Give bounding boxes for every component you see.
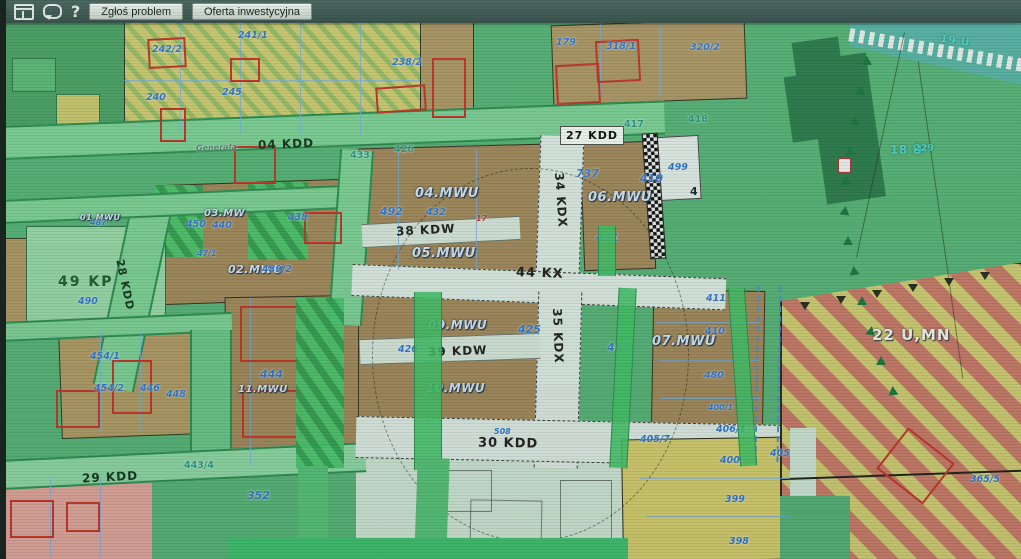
parcel-number: 238/2 [392,57,422,68]
parcel-number: 241/1 [238,30,268,41]
parcel-number: 352 [247,489,270,502]
parcel-number: 418 [688,114,708,125]
parcel-number: 229 [914,143,934,154]
emblem-marker [838,158,851,173]
boundary-tick [800,302,810,310]
cadastral-line [476,150,477,270]
tree-marker [843,236,853,245]
tree-marker [862,56,872,65]
cadastral-line [124,80,420,81]
parcel-number: 399 [725,494,745,505]
parcel-number: 405/7 [640,434,670,445]
parcel-number: 240 [146,92,166,103]
building-outline [432,58,466,118]
boundary-tick [908,284,918,292]
zone-label-49-kp: 49 KP [58,274,113,290]
boundary-tick [980,272,990,280]
building-footprint [560,480,612,542]
parcel-number: 417 [624,119,644,130]
parcel-number: 487 [90,218,107,227]
parcel-number: 508 [494,427,511,436]
parcel-number: 318/1 [606,41,636,52]
tree-marker [888,386,899,396]
cadastral-line [646,516,790,517]
tree-marker [844,145,855,156]
greenery-strip [414,292,442,470]
speech-bubble-icon[interactable] [43,4,62,19]
road-label-30-kdd: 30 KDD [478,435,539,451]
parcel-number: 405 [770,448,790,459]
road-label-44-kx: 44 KX [516,265,564,282]
zone-label-05-mwu: 05.MWU [412,246,476,261]
parcel-number: 17 [476,214,487,223]
parcel-number: 432 [426,207,446,218]
street-name-label: Generała [196,142,237,152]
green-patch-south-hatch [780,496,850,559]
zone-label-04-mwu: 04.MWU [415,186,479,201]
parcel-number: 438 [288,212,308,223]
tree-marker [855,85,867,96]
zone-label-11-mwu: 11.MWU [238,384,288,395]
toolbar: ? Zgłoś problem Oferta inwestycyjna [0,0,1021,23]
tree-marker [839,205,850,215]
parcel-number: 242/2 [152,44,182,55]
road-label-35-kdx: 35 KDX [550,308,566,364]
parcel-number: 737 [576,167,599,180]
investment-offer-button[interactable]: Oferta inwestycyjna [192,3,312,20]
parcel-number: 440 [212,220,232,231]
greenery-strip [296,298,344,468]
tree-marker [841,176,851,185]
parcel-number: 480 [704,370,724,381]
parcel-number: 454/1 [90,351,120,362]
parcel-number: 444 [260,368,283,381]
building-outline [56,390,100,428]
building-outline [375,84,427,113]
cadastral-line [100,332,101,432]
parcel-number: 489/2 [262,264,292,275]
parcel-number: 443/4 [184,460,214,471]
boundary-tick [872,290,882,298]
help-icon[interactable]: ? [71,4,80,20]
tree-marker [876,356,886,365]
building-outline [234,146,276,184]
parcel-number: 179 [556,37,576,48]
cadastral-line [660,24,661,98]
parcel-number: 499 [668,162,688,173]
screen-bezel-edge [0,0,6,559]
parcel-number: 400 [720,455,740,466]
parcel-number: 446 [140,383,160,394]
parcel-number: 365/5 [970,474,1000,485]
greenery-band-bottom [228,538,628,559]
layout-grid-icon[interactable] [14,4,34,20]
parcel-topleft-sub [12,58,56,92]
building-outline [10,500,54,538]
tree-marker [848,265,859,275]
tree-marker [857,296,867,305]
road-label-04-kdd: 04 KDD [258,136,315,152]
parcel-number: 490 [78,296,98,307]
parcel-number: 47/1 [197,249,217,258]
building-outline [160,108,186,142]
building-outline [242,390,302,438]
road-label-27-kdd-box: 27 KDD [560,126,624,145]
map-viewport[interactable]: Generała 04 KDD 27 KDD 28 KDD 29 KDD 30 … [0,0,1021,559]
parcel-number: 398 [729,536,749,547]
parcel-number: 411 [706,293,726,304]
road-label-29-kdd: 29 KDD [82,469,139,486]
cadastral-line [100,478,101,558]
parcel-number: 410 [705,326,725,337]
building-outline [304,212,342,244]
parcel-number: 4 [690,185,698,198]
parcel-topleft-yellow [56,94,100,126]
parcel-number: 492 [380,205,403,218]
boundary-tick [944,278,954,286]
parcel-number: 433 [350,150,370,161]
parcel-number: 448 [166,389,186,400]
parcel-number: 320/2 [690,42,720,53]
parcel-number: 245 [222,87,242,98]
screen: Generała 04 KDD 27 KDD 28 KDD 29 KDD 30 … [0,0,1021,559]
parcel-number: 425 [518,323,541,336]
greenery-strip [598,226,616,276]
report-problem-button[interactable]: Zgłoś problem [89,3,183,20]
boundary-tick [836,296,846,304]
parcel-number: 426 [394,144,414,155]
building-outline [555,63,601,105]
building-outline [66,502,100,532]
parcel-number: 400/1 [708,403,733,412]
tree-marker [850,116,860,125]
utility-corridor-blue [754,286,781,462]
building-outline [230,58,260,82]
cadastral-line [640,478,790,479]
parcel-number: 450 [186,219,206,230]
zone-label-06-mwu: 06.MWU [588,190,652,205]
parcel-number: 410 [640,172,663,185]
zone-label-03-mw: 03.MW [204,208,245,219]
zone-label-22-umn: 22 U,MN [872,326,950,344]
road-label-27-kdd: 27 KDD [566,129,618,142]
parcel-number: 454/2 [94,383,124,394]
